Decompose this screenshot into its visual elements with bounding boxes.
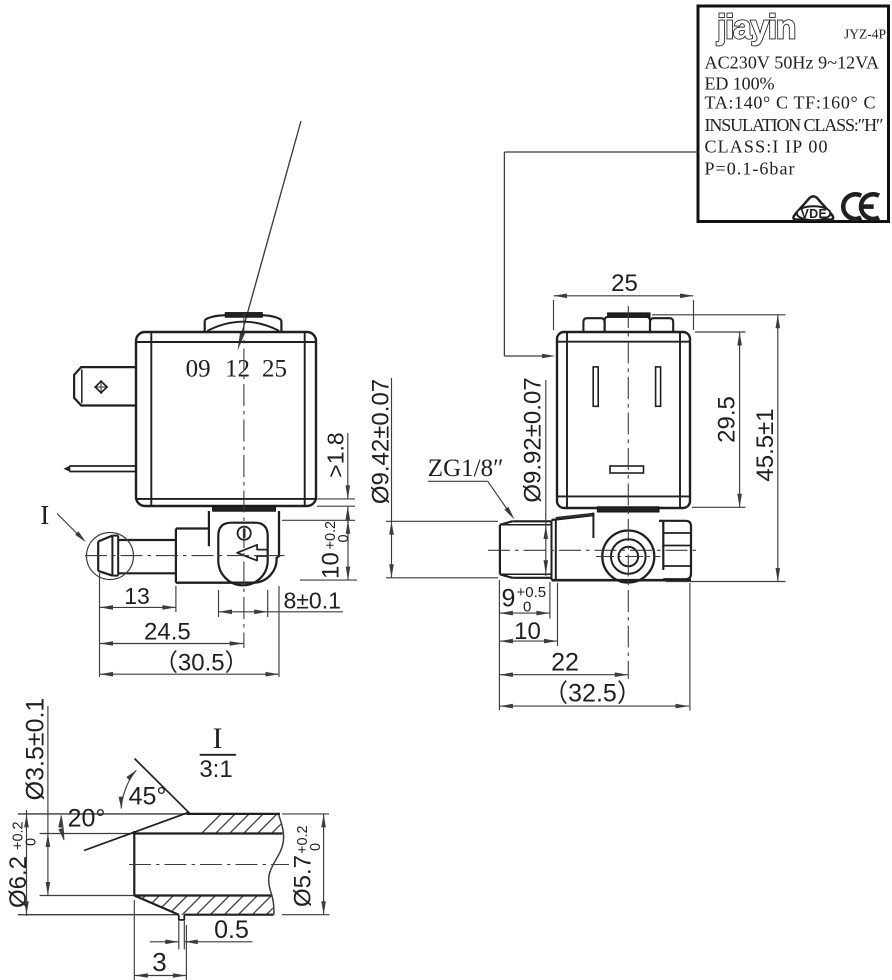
- svg-text:VDE: VDE: [800, 207, 827, 221]
- svg-text:0: 0: [308, 843, 324, 851]
- svg-text:>1.8: >1.8: [323, 432, 349, 477]
- svg-text:09: 09: [186, 356, 211, 383]
- svg-text:I: I: [40, 500, 49, 530]
- svg-text:0: 0: [336, 534, 352, 542]
- svg-text:24.5: 24.5: [144, 618, 191, 645]
- svg-text:29.5: 29.5: [714, 396, 741, 443]
- svg-text:25: 25: [611, 270, 638, 297]
- svg-text:Ø6.2: Ø6.2: [5, 856, 32, 908]
- svg-text:Ø9.92±0.07: Ø9.92±0.07: [520, 377, 547, 502]
- svg-text:0: 0: [24, 838, 40, 846]
- svg-text:10: 10: [318, 552, 345, 579]
- svg-text:ZG1/8″: ZG1/8″: [428, 455, 504, 482]
- svg-text:3:1: 3:1: [199, 756, 232, 783]
- svg-text:0.5: 0.5: [214, 916, 249, 944]
- svg-text:ED 100%: ED 100%: [705, 74, 775, 94]
- svg-text:9: 9: [502, 585, 516, 613]
- svg-text:8±0.1: 8±0.1: [284, 588, 341, 614]
- svg-text:JYZ-4P: JYZ-4P: [844, 27, 886, 42]
- svg-text:10: 10: [514, 618, 541, 645]
- svg-text:13: 13: [124, 583, 150, 609]
- svg-text:CLASS:I IP 00: CLASS:I IP 00: [705, 137, 828, 157]
- svg-text:25: 25: [262, 356, 287, 383]
- svg-text:45.5±1: 45.5±1: [752, 408, 779, 481]
- svg-text:I: I: [213, 722, 223, 755]
- svg-text:P=0.1-6bar: P=0.1-6bar: [705, 159, 795, 179]
- svg-text:（30.5）: （30.5）: [154, 649, 249, 676]
- svg-text:AC230V 50Hz 9~12VA: AC230V 50Hz 9~12VA: [705, 53, 880, 73]
- svg-text:22: 22: [551, 649, 579, 677]
- svg-text:12: 12: [225, 356, 250, 383]
- svg-text:Ø3.5±0.1: Ø3.5±0.1: [22, 698, 50, 801]
- svg-text:0: 0: [523, 599, 531, 616]
- svg-text:（32.5）: （32.5）: [543, 680, 642, 708]
- svg-text:Ø5.7: Ø5.7: [290, 855, 317, 907]
- svg-text:jiayin: jiayin: [716, 9, 795, 47]
- svg-text:INSULATION CLASS:″H″: INSULATION CLASS:″H″: [705, 115, 884, 135]
- svg-text:TA:140° C TF:160° C: TA:140° C TF:160° C: [705, 93, 876, 113]
- svg-text:45°: 45°: [129, 783, 167, 811]
- svg-text:20°: 20°: [68, 805, 106, 833]
- svg-text:Ø9.42±0.07: Ø9.42±0.07: [368, 379, 395, 504]
- svg-text:3: 3: [152, 947, 166, 977]
